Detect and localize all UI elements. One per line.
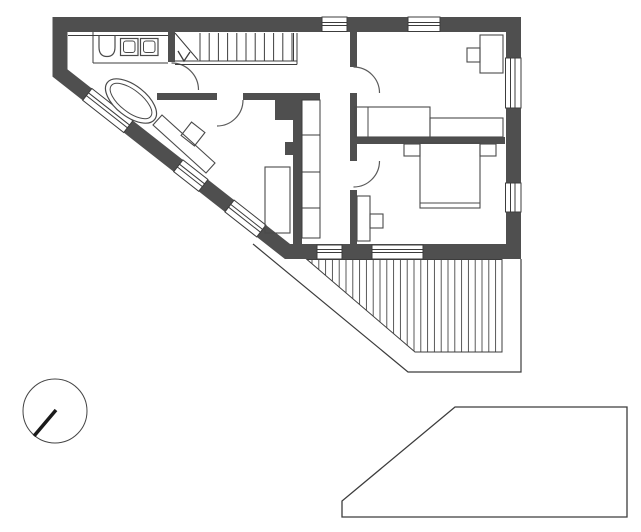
window-top-1 — [322, 17, 347, 32]
nightstand-left — [404, 144, 420, 156]
door-arc-bathroom — [172, 63, 199, 90]
desk-bedroom-1 — [480, 35, 503, 73]
terrace-hatch — [312, 260, 496, 352]
sink-1-basin — [124, 41, 136, 53]
garage-outline — [342, 407, 627, 517]
window-diagonal-2 — [174, 160, 208, 191]
nightstand-right — [480, 144, 496, 156]
terrace-border — [307, 260, 502, 353]
window-right-1 — [506, 58, 522, 108]
toilet — [99, 36, 115, 57]
sofa-middle-room — [265, 167, 290, 233]
window-top-2 — [408, 17, 440, 32]
stair-treads — [200, 33, 292, 61]
floor-plan-page — [0, 0, 641, 532]
wall-stub-block — [285, 142, 297, 155]
floor-plan-canvas — [0, 0, 641, 532]
door-arc-bedroom-2 — [354, 161, 380, 187]
chair-bedroom-2 — [370, 214, 383, 228]
north-compass-needle — [34, 410, 56, 436]
desk-bedroom-2 — [357, 196, 370, 241]
stair-direction-line — [175, 33, 198, 60]
chimney-block — [275, 100, 297, 120]
bed-bedroom-2 — [420, 143, 480, 208]
chair-bedroom-1 — [467, 48, 480, 62]
door-arc-middle-room — [217, 100, 243, 126]
window-right-2 — [506, 183, 522, 212]
stair-direction-arrow — [178, 51, 190, 61]
sink-2-basin — [144, 41, 156, 53]
door-arc-bedroom-1 — [354, 67, 380, 93]
shelf-bedroom-1 — [430, 118, 503, 137]
closet-box — [302, 100, 320, 238]
bed-bedroom-1 — [355, 107, 430, 137]
